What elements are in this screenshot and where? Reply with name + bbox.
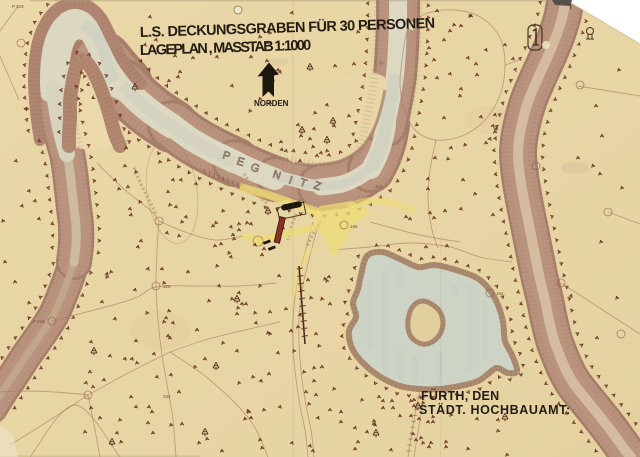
svg-text:166: 166 [350,224,358,229]
svg-text:P 319: P 319 [12,4,24,9]
svg-text:164: 164 [496,291,504,296]
svg-text:NORDEN: NORDEN [254,99,290,108]
svg-text:310: 310 [375,184,383,189]
svg-text:334: 334 [163,394,171,399]
svg-text:FÜRTH, DEN: FÜRTH, DEN [421,388,500,403]
svg-text:STÄDT. HOCHBAUAMT:: STÄDT. HOCHBAUAMT: [419,402,571,417]
svg-text:P 318: P 318 [33,319,45,324]
svg-text:328: 328 [163,284,171,289]
